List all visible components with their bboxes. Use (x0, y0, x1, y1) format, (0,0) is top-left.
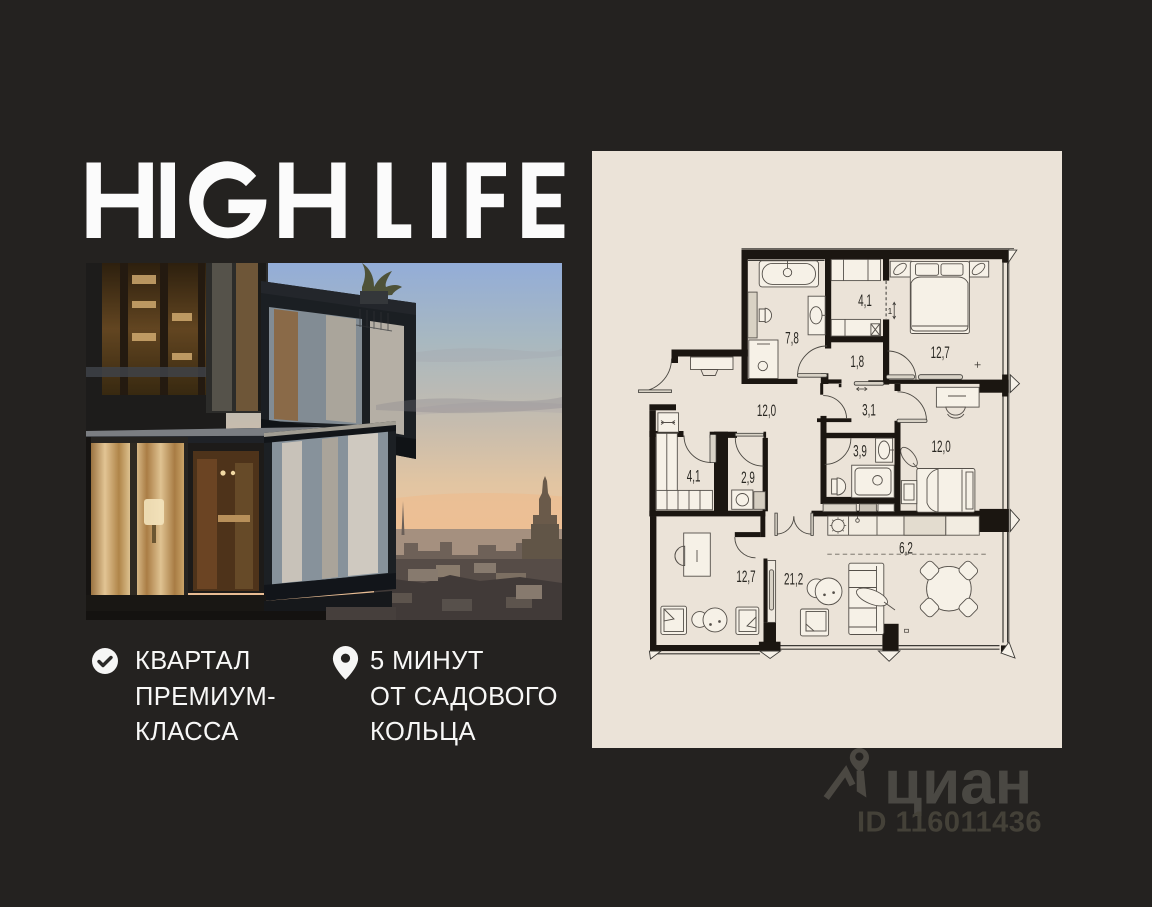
svg-text:3,1: 3,1 (862, 401, 876, 419)
svg-text:12,0: 12,0 (757, 402, 776, 420)
svg-text:2,9: 2,9 (741, 468, 755, 486)
svg-text:12,7: 12,7 (736, 567, 755, 585)
svg-text:ID 116011436: ID 116011436 (857, 807, 1042, 839)
svg-text:1,8: 1,8 (850, 352, 864, 370)
svg-text:1: 1 (888, 307, 893, 316)
svg-text:7,8: 7,8 (785, 329, 799, 347)
svg-text:4,1: 4,1 (858, 292, 872, 310)
svg-text:12,7: 12,7 (931, 343, 950, 361)
svg-text:12,0: 12,0 (932, 437, 951, 455)
svg-text:3,9: 3,9 (853, 442, 867, 460)
svg-text:21,2: 21,2 (784, 570, 803, 588)
svg-text:6,2: 6,2 (899, 539, 913, 557)
svg-text:4,1: 4,1 (687, 467, 701, 485)
